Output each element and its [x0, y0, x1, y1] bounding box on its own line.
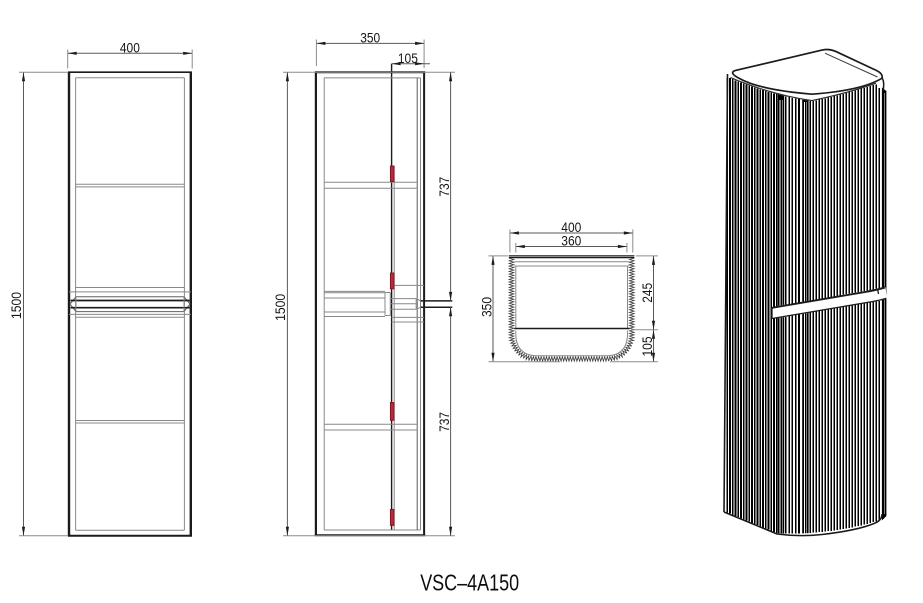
svg-text:737: 737 — [437, 177, 452, 197]
svg-text:350: 350 — [360, 31, 380, 46]
svg-text:400: 400 — [120, 40, 140, 55]
svg-text:VSC–4A150: VSC–4A150 — [420, 570, 519, 596]
svg-text:350: 350 — [480, 297, 495, 317]
svg-text:105: 105 — [398, 51, 418, 66]
svg-text:1500: 1500 — [273, 294, 288, 321]
svg-text:360: 360 — [561, 234, 581, 249]
svg-text:245: 245 — [640, 283, 655, 303]
svg-text:737: 737 — [437, 412, 452, 432]
svg-text:105: 105 — [640, 337, 655, 357]
svg-text:1500: 1500 — [9, 292, 24, 319]
